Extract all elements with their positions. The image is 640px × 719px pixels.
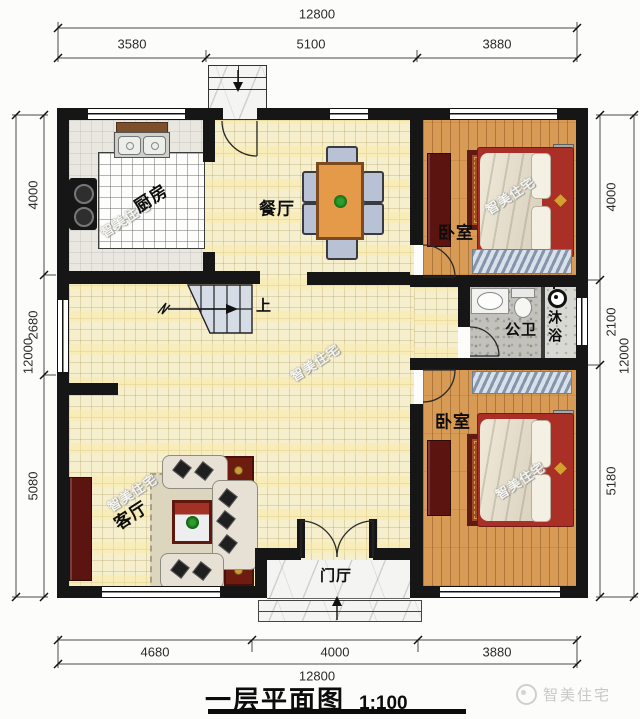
dim-left-seg: 4000: [26, 181, 41, 210]
room-label-shower: 沐浴: [545, 310, 565, 346]
dim-right-seg: 4000: [604, 183, 619, 212]
dim-left-seg: 2680: [26, 311, 41, 340]
brand-logo: 智美住宅: [516, 684, 611, 705]
brand-logo-text: 智美住宅: [543, 684, 611, 705]
stairs-up-label: 上: [256, 295, 272, 316]
dim-left-seg: 5080: [26, 472, 41, 501]
dim-top-seg: 5100: [297, 37, 326, 52]
dim-left-total: 12000: [21, 338, 36, 374]
dim-bottom-seg: 3880: [483, 645, 512, 660]
dim-bottom-seg: 4000: [321, 645, 350, 660]
floor-plan-canvas: 智美住宅 智美住宅 智美住宅 智美住宅 智美住宅 厨房 餐厅 卧室 卧室 公卫 …: [0, 0, 640, 719]
dim-right-total: 12000: [617, 338, 632, 374]
room-label-bedroom-bottom: 卧室: [435, 408, 471, 433]
dim-bottom-seg: 4680: [141, 645, 170, 660]
dim-top-seg: 3580: [118, 37, 147, 52]
dim-top-seg: 3880: [483, 37, 512, 52]
dim-top-total: 12800: [299, 7, 335, 22]
room-label-foyer: 门厅: [320, 565, 352, 586]
dim-right-seg: 2100: [604, 308, 619, 337]
brand-logo-icon: [516, 684, 537, 705]
room-label-bedroom-top: 卧室: [438, 219, 474, 244]
room-label-bathroom: 公卫: [505, 319, 537, 340]
title-underline: [208, 709, 466, 714]
dim-right-seg: 5180: [604, 467, 619, 496]
room-label-dining: 餐厅: [259, 195, 295, 220]
